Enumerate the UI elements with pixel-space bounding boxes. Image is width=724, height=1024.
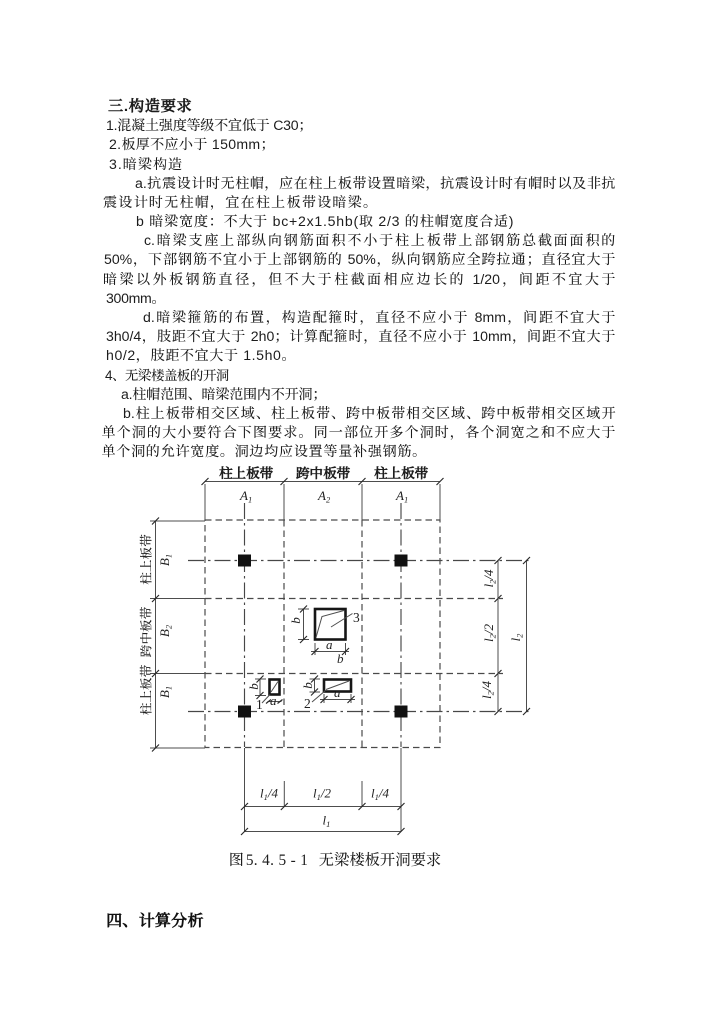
svg-text:b: b	[246, 683, 261, 690]
svg-text:2: 2	[304, 696, 311, 711]
svg-text:A1: A1	[239, 488, 252, 505]
svg-text:B1: B1	[157, 554, 174, 566]
svg-text:l2: l2	[508, 633, 525, 642]
svg-text:A2: A2	[317, 488, 331, 505]
svg-text:柱上板带: 柱上板带	[374, 462, 429, 482]
svg-text:a: a	[326, 637, 333, 652]
svg-text:l2/2: l2/2	[481, 624, 498, 642]
svg-text:1: 1	[256, 697, 263, 712]
svg-text:l1/4: l1/4	[260, 786, 278, 803]
svg-text:a: a	[270, 693, 277, 708]
svg-text:l1/4: l1/4	[371, 786, 389, 803]
svg-text:l1/2: l1/2	[313, 786, 331, 803]
svg-text:b: b	[337, 651, 344, 666]
svg-text:b: b	[300, 682, 315, 689]
svg-text:柱上板带: 柱上板带	[136, 534, 155, 585]
svg-text:a: a	[334, 685, 341, 700]
svg-text:A1: A1	[395, 488, 408, 505]
svg-text:跨中板带: 跨中板带	[136, 606, 155, 657]
svg-text:b: b	[288, 617, 303, 624]
svg-text:柱上板带: 柱上板带	[219, 462, 274, 482]
svg-text:l2/4: l2/4	[479, 681, 496, 699]
svg-text:B1: B1	[157, 686, 174, 698]
svg-text:l2/4: l2/4	[481, 569, 498, 587]
svg-text:3: 3	[353, 610, 360, 625]
svg-text:l1: l1	[323, 813, 331, 830]
svg-text:B2: B2	[157, 624, 174, 637]
svg-text:柱上板带: 柱上板带	[136, 664, 155, 715]
svg-text:跨中板带: 跨中板带	[296, 462, 351, 482]
